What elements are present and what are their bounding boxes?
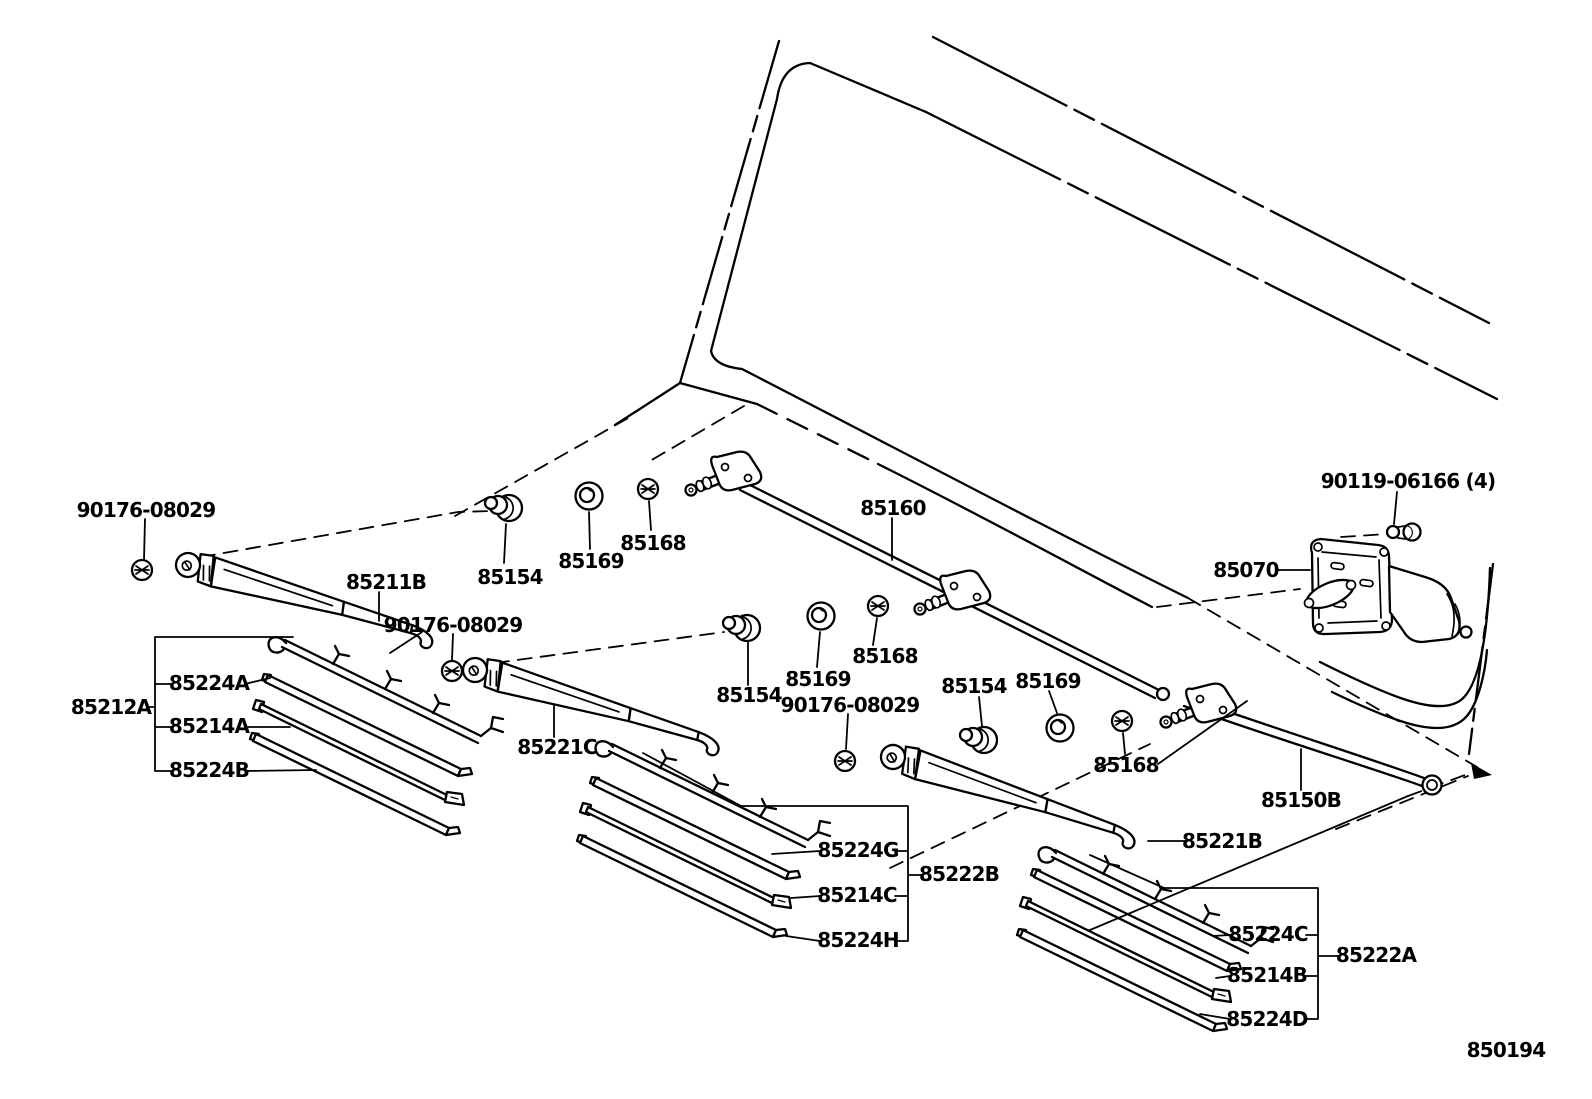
label-85154-b: 85154 (716, 683, 782, 707)
nut-85168-2 (868, 596, 888, 616)
window-left-edge (711, 63, 926, 351)
label-85224a: 85224A (169, 671, 251, 695)
roof-line (933, 37, 1489, 323)
rail-85224h (577, 835, 787, 937)
pivot-2 (915, 571, 991, 615)
guide-arm1-grommet (201, 511, 492, 557)
label-85154-c: 85154 (941, 674, 1007, 698)
body-corner-left (615, 383, 680, 425)
plate-slot-1 (1331, 562, 1345, 570)
nut-85168-3 (1112, 711, 1132, 731)
guide-arm2-grommet (495, 632, 724, 663)
grommet-85154-1 (485, 495, 522, 521)
label-85168-a: 85168 (620, 531, 686, 555)
motor-body (1389, 566, 1460, 642)
clip-90176-1 (132, 560, 152, 580)
plate-ear-2 (1380, 548, 1388, 556)
link-ring-end (1423, 776, 1442, 795)
label-85212a: 85212A (71, 695, 153, 719)
deck-seam (878, 464, 1152, 607)
label-85214c: 85214C (817, 883, 897, 907)
label-85221c: 85221C (517, 735, 597, 759)
label-85222b: 85222B (919, 862, 999, 886)
plate-ear-1 (1314, 543, 1322, 551)
rod-end-cap (1157, 688, 1169, 700)
label-85150b: 85150B (1261, 788, 1341, 812)
label-90176-c: 90176-08029 (781, 693, 920, 717)
grommet-85154-2 (723, 615, 760, 641)
body-right-edge (1469, 564, 1493, 754)
label-85168-c: 85168 (1093, 753, 1159, 777)
parts-diagram-page: 90176-08029 85211B 85154 90176-08029 851… (0, 0, 1592, 1099)
clip-90176-2 (442, 661, 462, 681)
leader-90176a (144, 519, 145, 559)
label-85169-a: 85169 (558, 549, 624, 573)
guide-grommet1-body (455, 417, 630, 516)
rail-85224d (1017, 929, 1227, 1031)
bushing-85169-2 (808, 603, 835, 630)
leader-85168b (873, 618, 877, 645)
diagram-code: 850194 (1467, 1038, 1546, 1062)
label-85221b: 85221B (1182, 829, 1262, 853)
leader-90176c (846, 714, 848, 749)
wiper-motor (1303, 524, 1472, 643)
leader-85169c (1049, 691, 1057, 713)
plate-ear-4 (1315, 624, 1323, 632)
guide-bolt-plate (1341, 534, 1387, 537)
mount-arrowhead (1471, 763, 1492, 779)
label-85224g: 85224G (817, 838, 898, 862)
pivot-1 (686, 452, 762, 496)
blade-set-2 (577, 741, 830, 937)
label-85214a: 85214A (169, 714, 251, 738)
label-90119: 90119-06166 (4) (1321, 469, 1496, 493)
label-85214b: 85214B (1227, 963, 1307, 987)
label-85224b: 85224B (169, 758, 249, 782)
bushing-85169-3 (1047, 715, 1074, 742)
label-85224h: 85224H (817, 928, 899, 952)
crank-hole-1 (1305, 599, 1314, 608)
wiper-parts-diagram: 90176-08029 85211B 85154 90176-08029 851… (0, 0, 1592, 1099)
guide-link-mount (1336, 776, 1468, 829)
plate-ear-3 (1382, 622, 1390, 630)
bolt-90119 (1387, 524, 1421, 541)
motor-shaft-nub (1461, 627, 1472, 638)
leader-85154a (504, 524, 506, 563)
window-top-edge (926, 112, 1497, 399)
leader-blade3-mount (1090, 796, 1408, 930)
window-bottom-edge (742, 369, 1188, 598)
label-85224c: 85224C (1228, 922, 1308, 946)
leader-85168a (649, 501, 651, 530)
label-85222a: 85222A (1336, 943, 1418, 967)
label-85224d: 85224D (1226, 1007, 1308, 1031)
clip-90176-3 (835, 751, 855, 771)
label-85070: 85070 (1213, 558, 1279, 582)
label-90176-a: 90176-08029 (77, 498, 216, 522)
nut-85168-1 (638, 479, 658, 499)
label-85168-b: 85168 (852, 644, 918, 668)
rail-85224b (250, 733, 460, 835)
plate-slot-2 (1360, 579, 1374, 587)
deck-seam-dashed (757, 404, 878, 464)
window-corner-outer (1332, 650, 1487, 728)
leader-90119 (1394, 492, 1397, 524)
body-corner-right (680, 383, 757, 404)
label-90176-b: 90176-08029 (384, 613, 523, 637)
leader-85154c (979, 697, 982, 726)
label-85154-a: 85154 (477, 565, 543, 589)
label-85169-b: 85169 (785, 667, 851, 691)
label-85160: 85160 (860, 496, 926, 520)
label-85169-c: 85169 (1015, 669, 1081, 693)
crank-hole-2 (1347, 581, 1356, 590)
glass-corner (711, 351, 742, 369)
leader-85169b (817, 632, 820, 667)
label-85211b: 85211B (346, 570, 426, 594)
bushing-85169-1 (576, 483, 603, 510)
body-left-edge (680, 41, 779, 383)
guide-deck-motor (1157, 589, 1300, 607)
leader-85169a (589, 512, 590, 549)
grommet-85154-3 (960, 727, 997, 753)
